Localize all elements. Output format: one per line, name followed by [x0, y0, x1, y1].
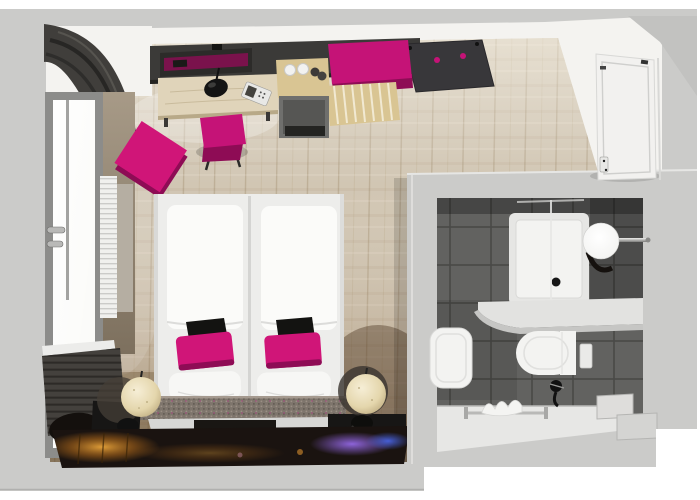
shower	[509, 200, 589, 312]
glowing-rug	[44, 426, 410, 468]
duvet-left	[167, 205, 243, 329]
wooden-luggage-rack	[325, 82, 400, 126]
glass	[318, 72, 327, 81]
radiator	[100, 176, 133, 318]
duvet-right	[261, 206, 337, 330]
padded-headboard-bench	[136, 396, 346, 420]
toilet	[516, 331, 576, 375]
coat-hook	[460, 53, 466, 59]
door-handle	[600, 157, 608, 172]
magenta-pillow-left	[175, 331, 234, 371]
remote-control	[173, 60, 187, 68]
bed-seam	[248, 196, 251, 426]
flush-plate	[580, 344, 592, 368]
desk-leg	[266, 112, 270, 121]
shower-drain	[552, 278, 561, 287]
window-mullion	[66, 100, 69, 300]
floorplan-render	[0, 0, 700, 500]
cup	[298, 64, 309, 75]
washbasin	[430, 328, 472, 388]
floorplan-svg	[0, 0, 700, 500]
bathroom-counter	[474, 298, 643, 334]
coat-rack-panel	[404, 40, 494, 92]
desk-leg	[164, 118, 168, 127]
twin-beds	[154, 194, 344, 426]
coat-hook	[434, 57, 440, 63]
lamp-mount	[212, 44, 222, 50]
door-hinge	[600, 66, 606, 70]
radiator-panel	[117, 184, 133, 312]
magenta-pillow-right	[264, 332, 322, 369]
cup	[285, 65, 296, 76]
minibar	[276, 58, 330, 138]
white-entrance-door	[590, 54, 660, 182]
bathroom	[407, 170, 697, 466]
